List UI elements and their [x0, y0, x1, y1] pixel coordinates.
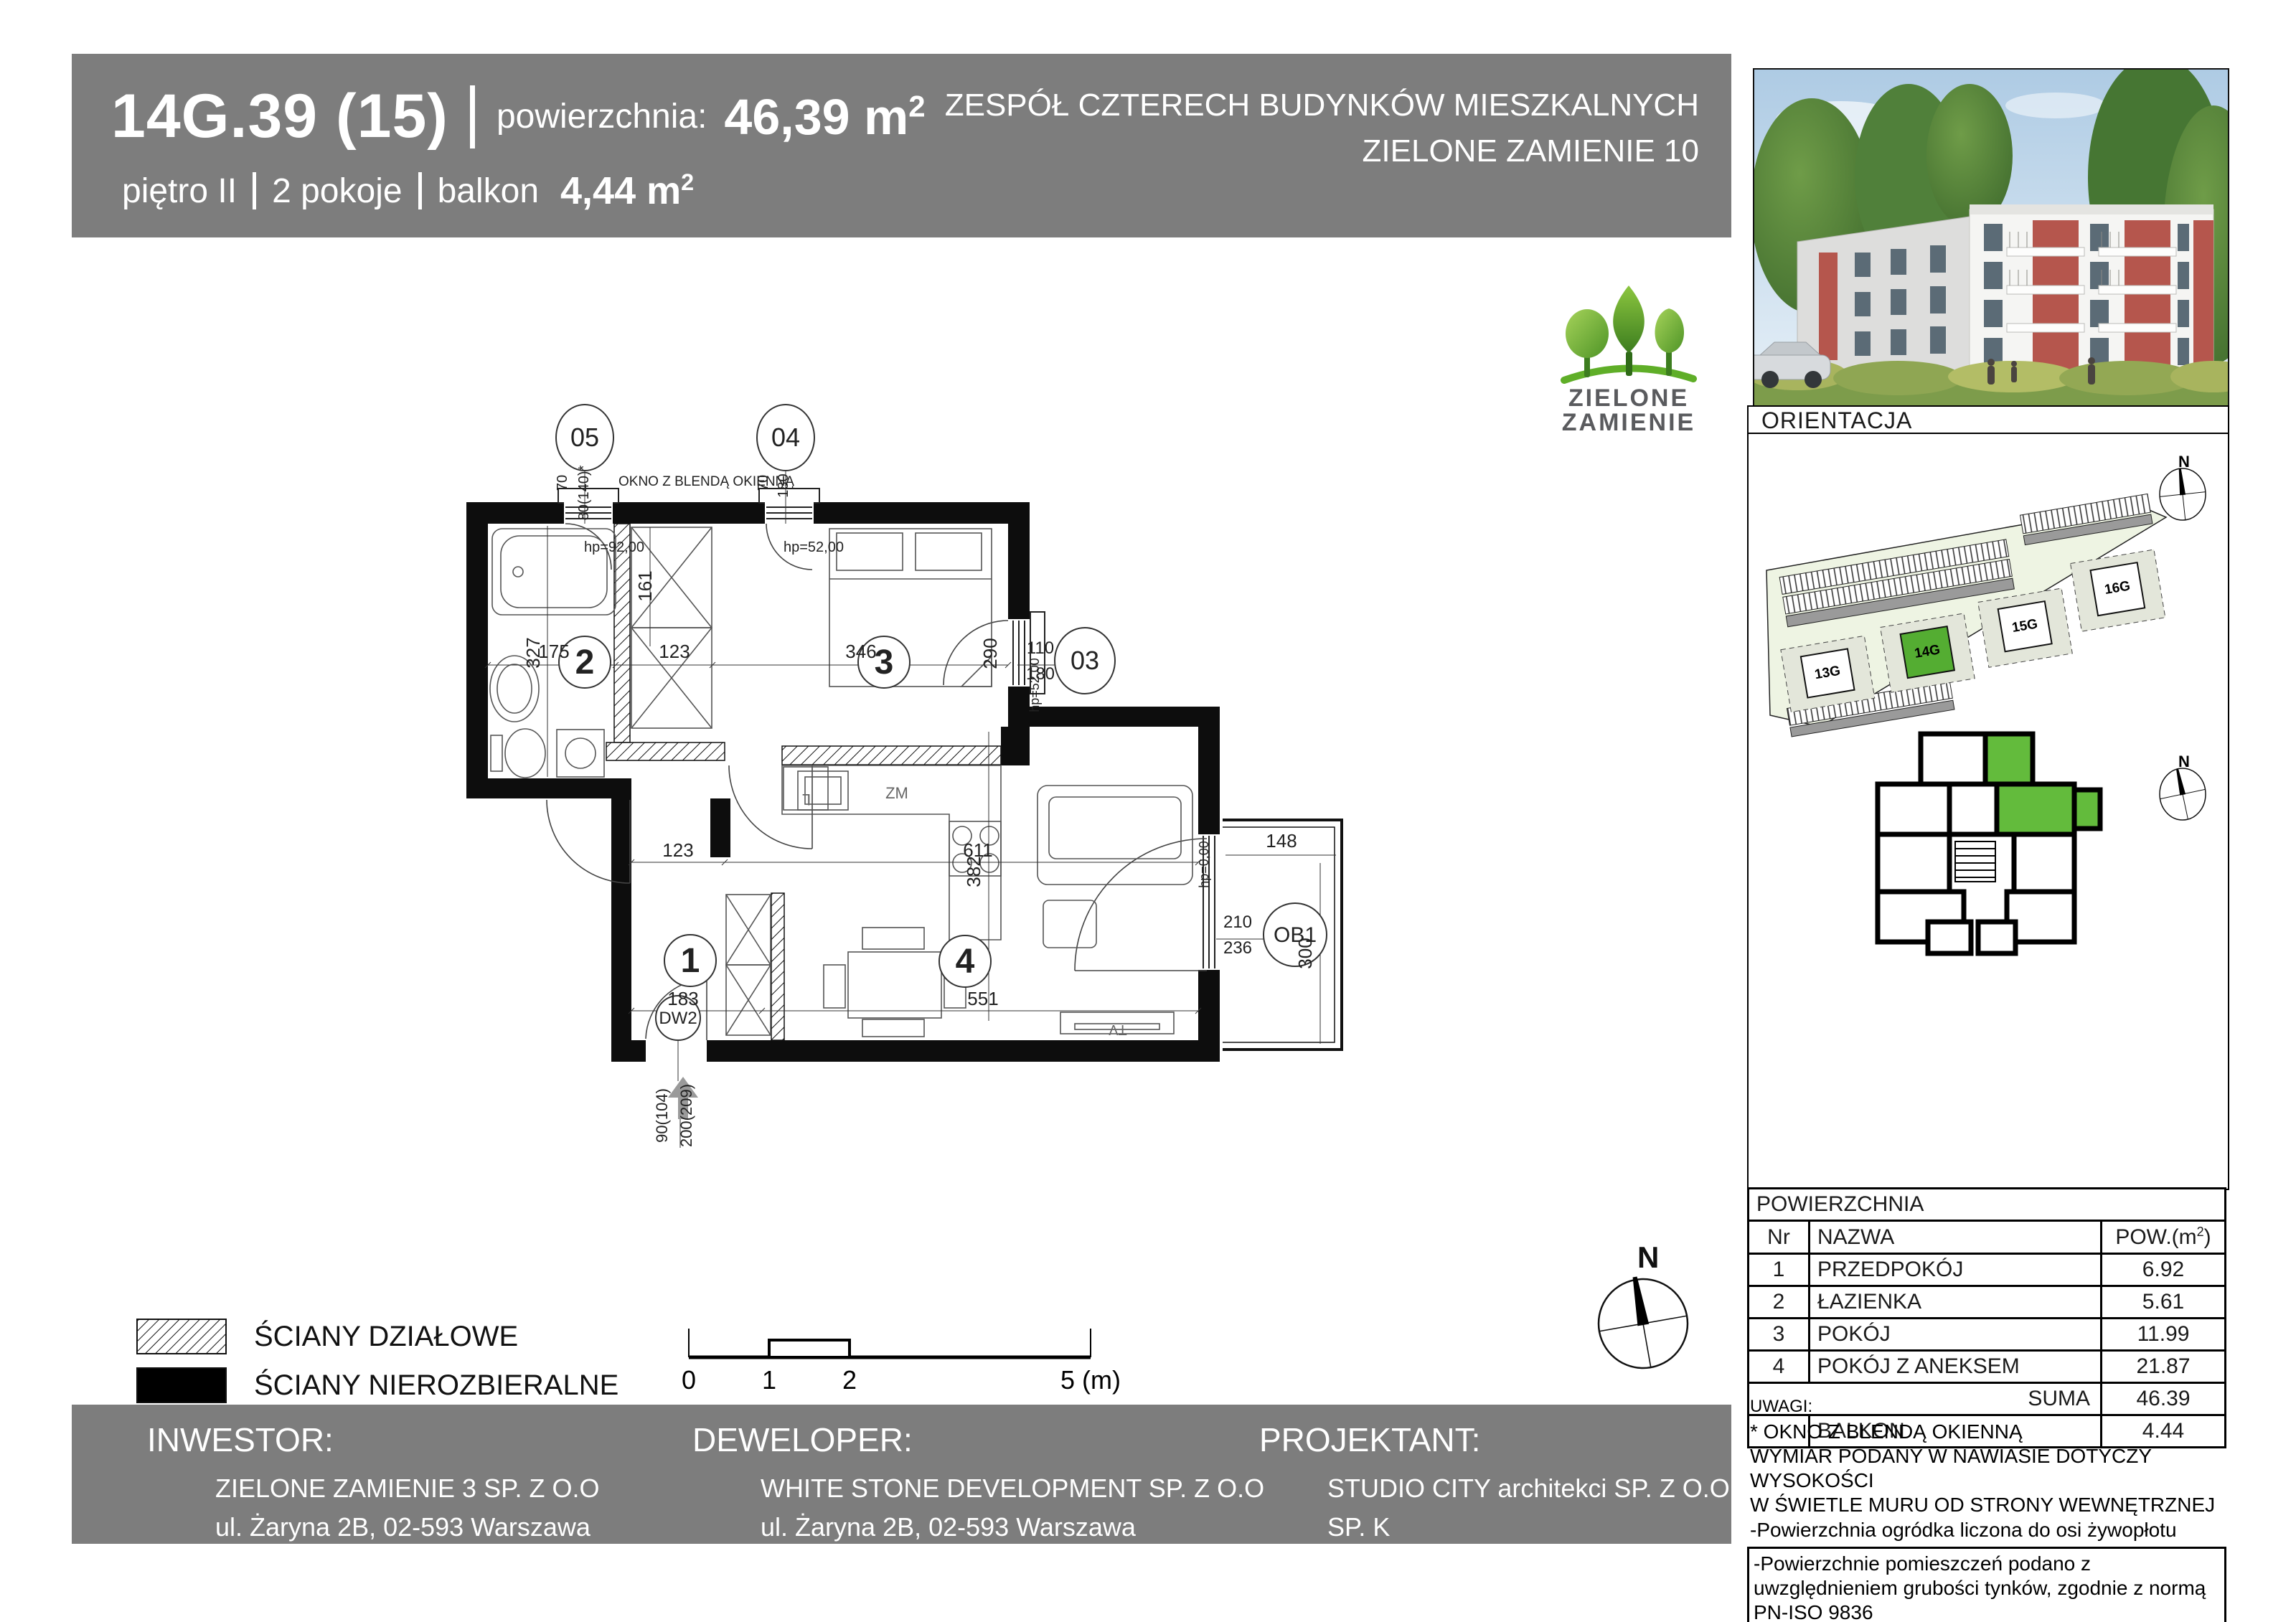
plan-label: 05 [570, 423, 599, 452]
investor-block: INWESTOR: ZIELONE ZAMIENIE 3 SP. Z O.O u… [147, 1420, 599, 1547]
project-line1: ZESPÓŁ CZTERECH BUDYNKÓW MIESZKALNYCH [945, 82, 1699, 128]
plan-label: 123 [659, 641, 690, 662]
plan-label: 183 [667, 988, 698, 1009]
developer-label: DEWELOPER: [692, 1420, 1264, 1459]
plan-label: hp=92,00 [584, 539, 644, 555]
developer-block: DEWELOPER: WHITE STONE DEVELOPMENT SP. Z… [692, 1420, 1264, 1547]
scale-bar: 0 1 2 5 (m) [667, 1313, 1170, 1399]
col-name: NAZWA [1810, 1221, 2102, 1254]
floor-plan-drawing: 050403OB1DW21234175123346123611183551148… [430, 398, 1363, 1159]
designer-address1: ul. Lekarska 8, 00-610 Warszawa [1327, 1547, 1731, 1585]
plan-label: 327 [522, 637, 544, 668]
legend-partition-label: ŚCIANY DZIAŁOWE [254, 1321, 518, 1353]
key-plan [1835, 721, 2136, 958]
table-row: 4POKÓJ Z ANEKSEM21.87 [1749, 1351, 2226, 1383]
table-cell: PRZEDPOKÓJ [1810, 1254, 2102, 1286]
solid-swatch-icon [136, 1367, 227, 1403]
header-band: 14G.39 (15) powierzchnia: 46,39 m2 piętr… [72, 54, 1731, 237]
designer-details: STUDIO CITY architekci SP. Z O.O SP. K u… [1327, 1469, 1731, 1622]
plan-label: 346 [845, 641, 876, 662]
table-cell: 11.99 [2102, 1319, 2226, 1351]
developer-details: WHITE STONE DEVELOPMENT SP. Z O.O ul. Ża… [761, 1469, 1264, 1547]
plan-label: hp=52,00 [784, 539, 844, 555]
designer-address2: ul. Wincentego Pola 2/1, 71-342 Szczecin [1327, 1585, 1731, 1622]
building-render [1753, 68, 2229, 408]
plan-label: 1 [681, 942, 700, 980]
project-line2: ZIELONE ZAMIENIE 10 [945, 128, 1699, 174]
scale-tick-0: 0 [682, 1365, 696, 1395]
plan-label: OKNO Z BLENDĄ OKIENNĄ [618, 474, 794, 489]
plan-label: 382 [963, 856, 984, 887]
north-label: N [2178, 753, 2190, 770]
compass-small-top: N [2147, 450, 2219, 530]
footer-band: INWESTOR: ZIELONE ZAMIENIE 3 SP. Z O.O u… [72, 1405, 1731, 1544]
notes-title: UWAGI: [1750, 1397, 2226, 1417]
logo-trees-icon [1564, 286, 1693, 380]
table-cell: 21.87 [2102, 1351, 2226, 1383]
investor-address: ul. Żaryna 2B, 02-593 Warszawa [215, 1508, 599, 1547]
plan-label: 90(104) [653, 1088, 671, 1143]
balcony-value: 4,44 m2 [560, 169, 694, 213]
table-cell: POKÓJ [1810, 1319, 2102, 1351]
plan-labels: 050403OB1DW21234175123346123611183551148… [522, 423, 1317, 1147]
orientation-bar: ORIENTACJA [1747, 405, 2229, 435]
plan-label: 04 [771, 423, 800, 452]
note-line: * OKNO Z BLENDĄ OKIENNĄ [1750, 1420, 2226, 1444]
plan-label: hp=0,00 [1197, 841, 1211, 888]
plan-label: 200(209) [677, 1084, 695, 1147]
rooms-label: 2 pokoje [272, 171, 402, 211]
plan-label: 3 [875, 643, 894, 682]
plan-label: hp=52,00 [1027, 658, 1042, 712]
table-cell: 1 [1749, 1254, 1810, 1286]
hatched-swatch-icon [136, 1319, 227, 1354]
plan-label: 161 [634, 570, 656, 601]
table-cell: 3 [1749, 1319, 1810, 1351]
plan-label: L [802, 791, 811, 808]
project-title: ZESPÓŁ CZTERECH BUDYNKÓW MIESZKALNYCH ZI… [945, 82, 1699, 174]
scale-tick-1: 1 [762, 1365, 776, 1395]
area-label: powierzchnia: [497, 97, 707, 136]
note-line: -Powierzchnia ogródka liczona do osi żyw… [1750, 1518, 2226, 1542]
note-line: -Powierzchnie pomieszczeń podano z uwzgl… [1754, 1552, 2219, 1622]
unit-id: 14G.39 (15) [111, 81, 448, 152]
site-panel: 13G 14G 15G 16G N N [1747, 433, 2229, 1190]
developer-name: WHITE STONE DEVELOPMENT SP. Z O.O [761, 1469, 1264, 1508]
compass-rose: N [1564, 1234, 1722, 1399]
plan-label: DW2 [659, 1009, 697, 1028]
floor-label: piętro II [122, 171, 237, 211]
plan-label: TV [1109, 1022, 1127, 1037]
divider-bar [470, 85, 475, 148]
scale-tick-2: 2 [842, 1365, 857, 1395]
plan-label: 2 [575, 643, 595, 682]
legend-solid-row: ŚCIANY NIEROZBIERALNE [136, 1367, 618, 1403]
legend-solid-label: ŚCIANY NIEROZBIERALNE [254, 1369, 618, 1402]
north-label: N [1637, 1240, 1659, 1274]
plan-label: 210 [1223, 913, 1252, 932]
north-label: N [2178, 453, 2190, 471]
table-cell: 5.61 [2102, 1286, 2226, 1319]
load-bearing-walls [466, 502, 1220, 1062]
col-pow: POW.(m2) [2102, 1221, 2226, 1254]
plan-label: 123 [662, 839, 693, 861]
plan-label: 03 [1071, 646, 1099, 675]
logo-text-line2: Zamienie [1562, 409, 1695, 436]
plan-label: 80(140)* [576, 465, 592, 520]
plan-label: 300 [1294, 938, 1316, 968]
designer-block: PROJEKTANT: STUDIO CITY architekci SP. Z… [1259, 1420, 1731, 1622]
divider-bar [418, 172, 422, 209]
col-nr: Nr [1749, 1221, 1810, 1254]
legend: ŚCIANY DZIAŁOWE ŚCIANY NIEROZBIERALNE [136, 1319, 618, 1416]
designer-label: PROJEKTANT: [1259, 1420, 1731, 1459]
investor-name: ZIELONE ZAMIENIE 3 SP. Z O.O [215, 1469, 599, 1508]
plan-label: 110 [1027, 638, 1054, 658]
plan-label: 4 [956, 943, 975, 981]
legend-partition-row: ŚCIANY DZIAŁOWE [136, 1319, 618, 1354]
table-cell: 6.92 [2102, 1254, 2226, 1286]
header-line1: 14G.39 (15) powierzchnia: 46,39 m2 [111, 81, 926, 152]
plan-label: 148 [1266, 830, 1297, 852]
table-title: POWIERZCHNIA [1749, 1189, 2226, 1221]
table-row: 1PRZEDPOKÓJ6.92 [1749, 1254, 2226, 1286]
balcony-label: balkon [438, 171, 539, 211]
table-row: 2ŁAZIENKA5.61 [1749, 1286, 2226, 1319]
note-line: WYMIAR PODANY W NAWIASIE DOTYCZY WYSOKOŚ… [1750, 1444, 2226, 1493]
investor-label: INWESTOR: [147, 1420, 599, 1459]
zielone-zamienie-logo: Zielone Zamienie [1521, 265, 1736, 438]
plan-label: 551 [967, 988, 998, 1009]
plan-label: 70 [555, 475, 570, 491]
plan-label: 290 [979, 638, 1001, 669]
header-line2: piętro II 2 pokoje balkon 4,44 m2 [122, 169, 694, 213]
notes: UWAGI: * OKNO Z BLENDĄ OKIENNĄ WYMIAR PO… [1747, 1395, 2226, 1622]
floorplan-sheet: 14G.39 (15) powierzchnia: 46,39 m2 piętr… [0, 0, 2296, 1622]
table-cell: ŁAZIENKA [1810, 1286, 2102, 1319]
logo-text-line1: Zielone [1568, 385, 1689, 412]
divider-bar [253, 172, 256, 209]
investor-details: ZIELONE ZAMIENIE 3 SP. Z O.O ul. Żaryna … [215, 1469, 599, 1547]
scale-tick-5: 5 (m) [1060, 1365, 1121, 1395]
table-cell: 2 [1749, 1286, 1810, 1319]
table-cell: 4 [1749, 1351, 1810, 1383]
designer-name: STUDIO CITY architekci SP. Z O.O SP. K [1327, 1469, 1731, 1547]
developer-address: ul. Żaryna 2B, 02-593 Warszawa [761, 1508, 1264, 1547]
table-row: 3POKÓJ11.99 [1749, 1319, 2226, 1351]
plan-label: 236 [1223, 938, 1252, 958]
area-value: 46,39 m2 [724, 88, 925, 146]
orientation-label: ORIENTACJA [1749, 407, 1912, 434]
note-line: W ŚWIETLE MURU OD STRONY WEWNĘTRZNEJ [1750, 1493, 2226, 1517]
plan-label: ZM [885, 784, 908, 802]
notes-box: -Powierzchnie pomieszczeń podano z uwzgl… [1747, 1547, 2226, 1622]
compass-small-bottom: N [2147, 750, 2219, 830]
table-cell: POKÓJ Z ANEKSEM [1810, 1351, 2102, 1383]
